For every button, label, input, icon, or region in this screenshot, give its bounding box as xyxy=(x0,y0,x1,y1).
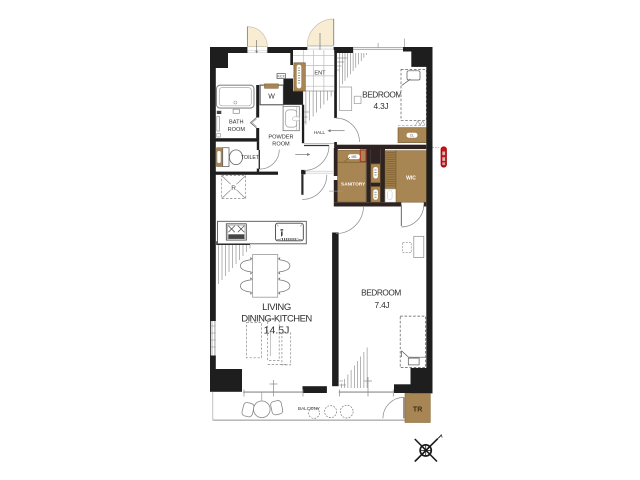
svg-text:ROOM: ROOM xyxy=(272,142,290,148)
svg-text:TR: TR xyxy=(413,407,422,414)
svg-text:ENT: ENT xyxy=(314,70,326,76)
svg-text:CL: CL xyxy=(410,134,415,138)
svg-text:KICK: KICK xyxy=(277,75,285,79)
svg-text:4.3J: 4.3J xyxy=(374,101,389,111)
svg-text:POWDER: POWDER xyxy=(268,134,293,140)
svg-text:TOILET: TOILET xyxy=(241,155,260,161)
svg-text:MB: MB xyxy=(351,155,357,159)
svg-text:HALL: HALL xyxy=(314,130,326,135)
svg-text:WIC: WIC xyxy=(406,175,416,181)
svg-text:SANITORY: SANITORY xyxy=(341,182,365,187)
svg-text:BEDROOM: BEDROOM xyxy=(361,287,401,297)
svg-text:7.4J: 7.4J xyxy=(375,300,390,310)
svg-text:BEDROOM: BEDROOM xyxy=(362,89,402,99)
svg-text:LIVING: LIVING xyxy=(262,302,291,313)
svg-text:W: W xyxy=(268,94,275,101)
svg-text:ROOM: ROOM xyxy=(228,127,246,133)
svg-text:DINING-KITCHEN: DINING-KITCHEN xyxy=(241,314,312,325)
svg-text:BATH: BATH xyxy=(229,120,244,126)
svg-text:R: R xyxy=(231,185,236,192)
